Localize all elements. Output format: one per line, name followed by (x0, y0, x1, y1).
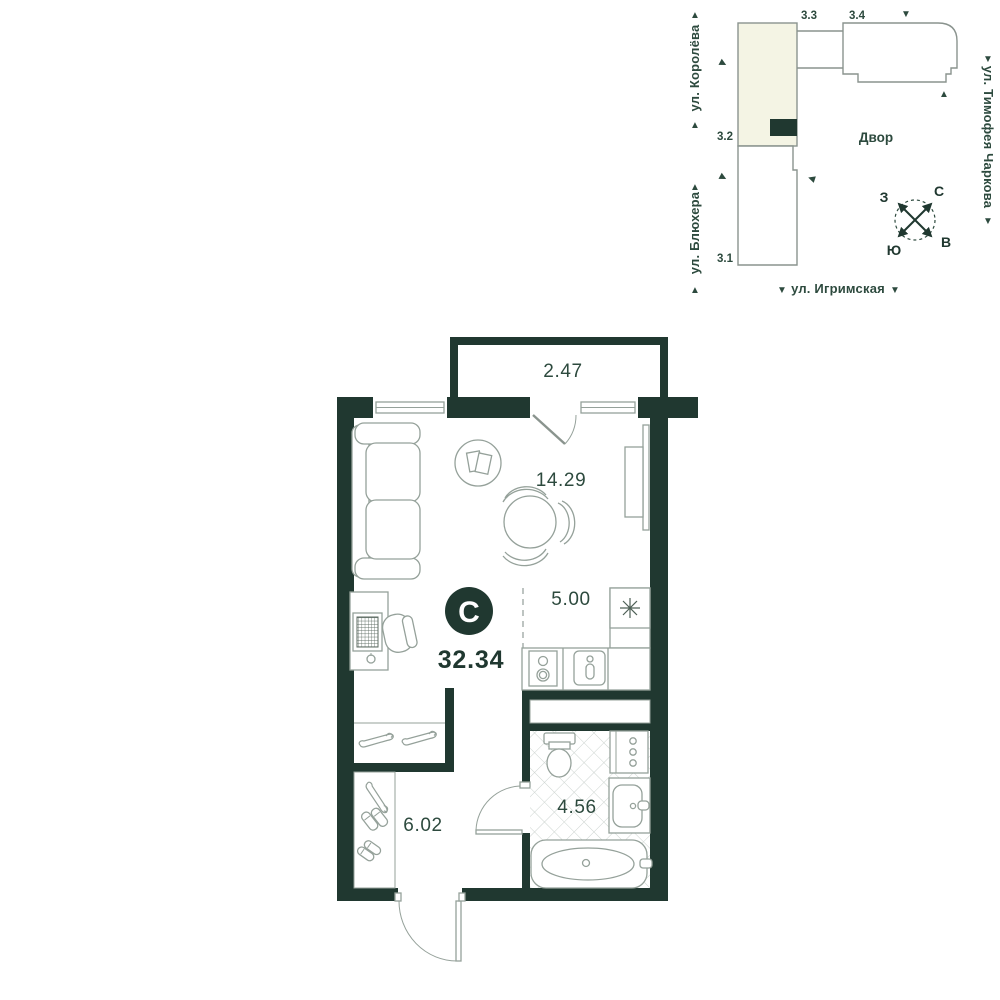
area-label-bathroom: 4.56 (557, 797, 596, 818)
wardrobe (354, 723, 445, 747)
building-label-3-4: 3.4 (849, 10, 866, 22)
street-blyukhera: ▲ ул. Блюхера ▲ (687, 182, 702, 296)
sofa (352, 423, 420, 579)
shoe-rack (354, 772, 395, 888)
snowflake-icon (620, 598, 640, 618)
hanger-icon (402, 731, 436, 745)
entrance-door (395, 893, 465, 961)
area-label-hallway: 6.02 (403, 815, 442, 836)
tv-unit (625, 425, 649, 530)
compass-east: В (941, 234, 951, 250)
street-arrow-icon: ▼ (777, 285, 787, 296)
apartment-location-marker (770, 119, 797, 136)
stove (529, 651, 557, 686)
compass-south: Ю (887, 242, 901, 258)
entrance-arrow-icon: ▶ (718, 171, 729, 183)
building-3-3-connector (797, 31, 843, 68)
street-arrow-icon: ▼ (890, 285, 900, 296)
street-arrow-icon: ▼ (983, 54, 993, 65)
building-3-4 (843, 23, 957, 82)
street-label: ул. Тимофея Чаркова (981, 66, 996, 209)
kitchen-sink (574, 651, 605, 685)
balcony-door (533, 415, 576, 444)
entrance-arrow-icon: ▼ (901, 9, 911, 20)
compass-rose-icon: З С Ю В (880, 183, 951, 258)
bathtub (531, 840, 652, 888)
slippers-icon (356, 838, 382, 863)
bathroom-door (476, 782, 530, 834)
street-label: ул. Королёва (687, 24, 702, 111)
logo-letter: С (458, 596, 480, 629)
compass-north: С (934, 183, 944, 199)
street-arrow-icon: ▲ (690, 285, 700, 296)
street-arrow-icon: ▲ (690, 120, 700, 131)
street-arrow-icon: ▼ (983, 216, 993, 227)
area-label-kitchen: 5.00 (551, 589, 590, 610)
hanger-icon (359, 733, 393, 747)
bathroom-sink (609, 778, 650, 833)
logo-badge: С (445, 587, 493, 635)
entrance-arrow-icon: ▶ (718, 57, 729, 69)
total-area-label: 32.34 (438, 646, 505, 674)
window-kitchen (581, 402, 635, 413)
street-arrow-icon: ▲ (690, 10, 700, 21)
street-arrow-icon: ▲ (690, 182, 700, 193)
window-living (376, 402, 444, 413)
courtyard-label: Двор (859, 130, 893, 145)
street-charkova: ▼ ул. Тимофея Чаркова ▼ (981, 54, 996, 227)
building-3-1 (738, 146, 797, 265)
building-3-2 (738, 23, 797, 146)
compass-west: З (880, 189, 889, 205)
street-label: ул. Игримская (791, 281, 885, 296)
building-label-3-3: 3.3 (801, 10, 817, 22)
building-label-3-1: 3.1 (717, 253, 734, 265)
area-label-living-room: 14.29 (536, 470, 587, 491)
coffee-table (455, 440, 501, 486)
entrance-arrow-icon: ▲ (939, 89, 949, 100)
street-label: ул. Блюхера (687, 191, 702, 274)
laptop-icon (357, 617, 378, 647)
area-label-balcony: 2.47 (543, 361, 582, 382)
building-label-3-2: 3.2 (717, 131, 733, 143)
floorplan-page: 3.3 3.4 3.2 3.1 Двор ▲ ул. Королёва ▲ ▲ … (0, 0, 1000, 1000)
street-koroleva: ▲ ул. Королёва ▲ (687, 10, 702, 131)
floor-plan: 2.47 14.29 5.00 6.02 4.56 С 32.34 (337, 337, 698, 961)
desk (350, 592, 388, 670)
street-igrimskaya: ▼ ул. Игримская ▼ (777, 281, 900, 296)
site-plan: 3.3 3.4 3.2 3.1 Двор ▲ ул. Королёва ▲ ▲ … (687, 9, 996, 296)
fridge (610, 588, 650, 628)
utility-niche (530, 700, 650, 723)
dining-table (503, 487, 575, 566)
entrance-arrow-icon: ◀ (807, 172, 817, 184)
washing-machine (610, 731, 648, 773)
plan-canvas: 3.3 3.4 3.2 3.1 Двор ▲ ул. Королёва ▲ ▲ … (0, 0, 1000, 1000)
